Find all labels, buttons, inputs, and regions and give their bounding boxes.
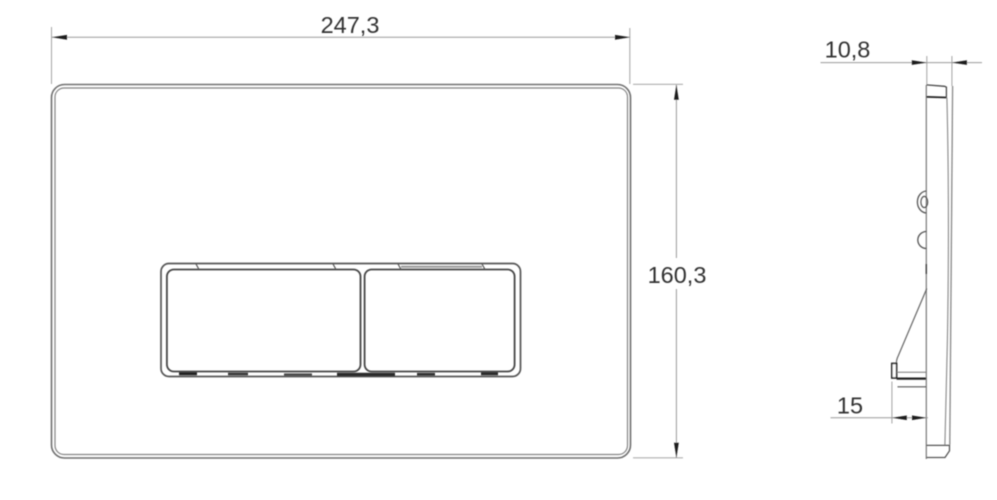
svg-text:247,3: 247,3 (321, 12, 380, 38)
svg-text:10,8: 10,8 (825, 37, 871, 63)
svg-text:160,3: 160,3 (648, 262, 707, 288)
svg-text:15: 15 (837, 393, 863, 419)
